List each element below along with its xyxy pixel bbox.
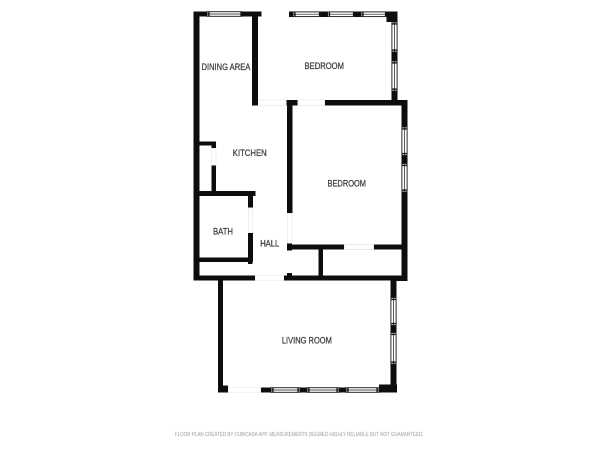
svg-text:FLOOR PLAN CREATED BY CUBICASA: FLOOR PLAN CREATED BY CUBICASA APP. MEAS… xyxy=(175,432,424,438)
svg-text:BATH: BATH xyxy=(213,226,233,236)
svg-text:KITCHEN: KITCHEN xyxy=(233,148,267,158)
svg-text:DINING AREA: DINING AREA xyxy=(202,62,251,72)
svg-text:HALL: HALL xyxy=(260,238,279,248)
svg-text:BEDROOM: BEDROOM xyxy=(305,61,345,71)
svg-text:BEDROOM: BEDROOM xyxy=(328,179,367,189)
svg-text:LIVING ROOM: LIVING ROOM xyxy=(282,335,332,345)
